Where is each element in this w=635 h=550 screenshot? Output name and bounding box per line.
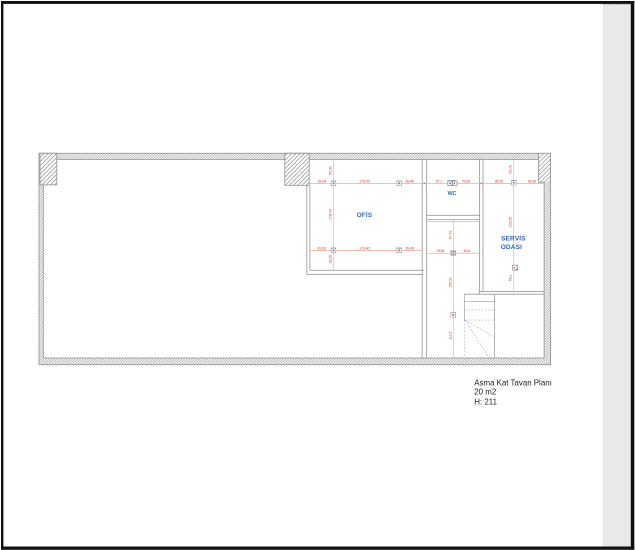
- svg-text:81,64: 81,64: [318, 180, 327, 184]
- svg-text:63,35: 63,35: [329, 255, 333, 264]
- svg-text:69,46: 69,46: [405, 180, 414, 184]
- svg-text:H: 211: H: 211: [474, 397, 497, 406]
- svg-text:WC: WC: [448, 191, 457, 197]
- svg-text:176,43: 176,43: [329, 209, 333, 220]
- svg-text:59,1: 59,1: [509, 275, 513, 282]
- svg-text:63,78: 63,78: [509, 165, 513, 174]
- svg-text:Asma Kat Tavan Planı: Asma Kat Tavan Planı: [474, 378, 552, 387]
- svg-text:87,42: 87,42: [449, 231, 453, 240]
- svg-text:76,98: 76,98: [527, 180, 536, 184]
- svg-text:112,9: 112,9: [449, 332, 453, 340]
- svg-text:20 m2: 20 m2: [474, 388, 496, 397]
- svg-text:78,56: 78,56: [436, 249, 445, 253]
- svg-text:173,40: 173,40: [359, 180, 370, 184]
- svg-text:81,63: 81,63: [317, 247, 326, 251]
- svg-text:231,50: 231,50: [509, 217, 513, 228]
- svg-text:79,59: 79,59: [462, 180, 471, 184]
- svg-text:165,32: 165,32: [449, 277, 453, 288]
- svg-text:85,92: 85,92: [495, 180, 504, 184]
- svg-text:ODASI: ODASI: [501, 244, 522, 251]
- svg-text:OFİS: OFİS: [357, 211, 373, 219]
- svg-text:69,46: 69,46: [405, 247, 414, 251]
- svg-text:65,32: 65,32: [329, 166, 333, 175]
- svg-text:67,7: 67,7: [436, 180, 443, 184]
- svg-text:SERVİS: SERVİS: [501, 235, 526, 243]
- svg-text:49,6: 49,6: [463, 249, 470, 253]
- svg-text:173,40: 173,40: [359, 247, 370, 251]
